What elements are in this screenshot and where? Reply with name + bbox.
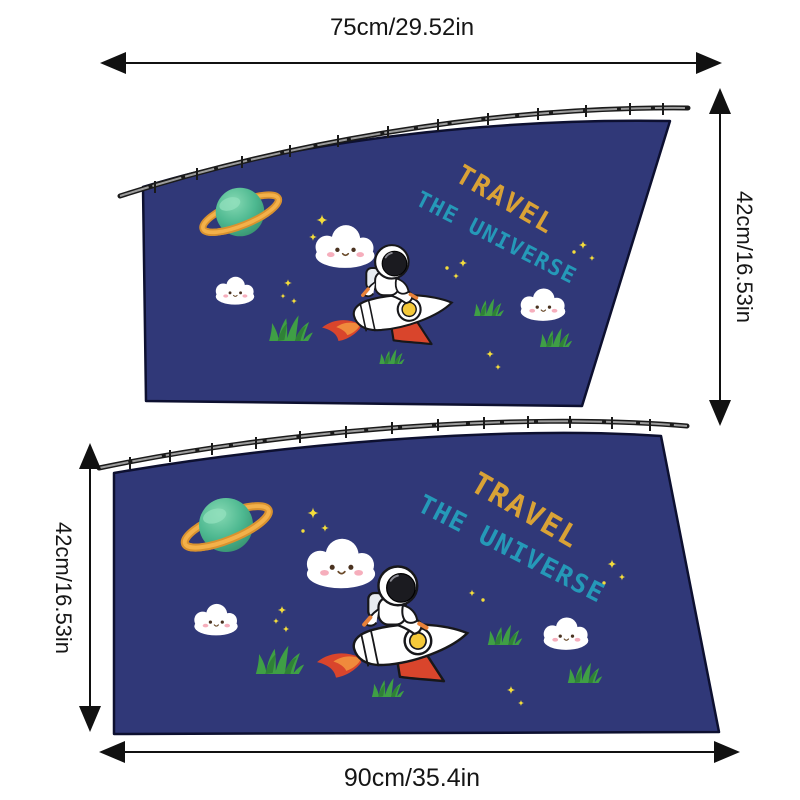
dimension-right-label: 42cm/16.53in: [730, 147, 758, 367]
star-icon: [481, 598, 484, 601]
rear-window-sunshade: TRAVEL THE UNIVERSE: [99, 416, 719, 734]
star-icon: [301, 529, 304, 532]
dimension-left-label: 42cm/16.53in: [49, 478, 77, 698]
star-icon: [445, 266, 448, 269]
sunshade-size-diagram: TRAVEL THE UNIVERSE TRAVEL THE UNIVERSE: [0, 0, 800, 800]
dimension-top-label: 75cm/29.52in: [252, 14, 552, 42]
dimension-bottom-label: 90cm/35.4in: [262, 764, 562, 793]
front-window-sunshade: TRAVEL THE UNIVERSE: [120, 103, 688, 406]
star-icon: [572, 250, 575, 253]
product-image: TRAVEL THE UNIVERSE TRAVEL THE UNIVERSE: [0, 0, 800, 800]
